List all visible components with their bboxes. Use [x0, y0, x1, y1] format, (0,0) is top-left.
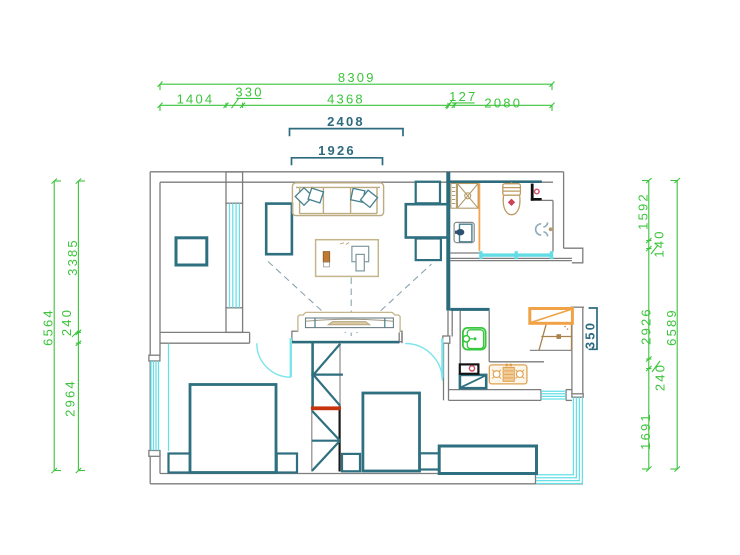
svg-text:240: 240	[59, 308, 74, 336]
svg-text:6564: 6564	[41, 308, 56, 346]
svg-text:2964: 2964	[63, 379, 78, 417]
svg-text:1404: 1404	[177, 92, 215, 107]
svg-text:350: 350	[583, 321, 598, 349]
svg-text:3385: 3385	[65, 238, 80, 276]
svg-text:1691: 1691	[638, 412, 653, 450]
svg-text:140: 140	[652, 229, 667, 257]
svg-text:330: 330	[235, 85, 263, 100]
svg-text:6589: 6589	[664, 308, 679, 346]
svg-text:1926: 1926	[318, 143, 356, 158]
svg-text:1592: 1592	[636, 192, 651, 230]
svg-text:2408: 2408	[327, 114, 365, 129]
svg-text:8309: 8309	[338, 70, 376, 85]
svg-text:240: 240	[653, 363, 668, 391]
svg-text:127: 127	[449, 89, 477, 104]
svg-text:2080: 2080	[484, 96, 522, 111]
svg-text:2926: 2926	[639, 307, 654, 345]
svg-text:4368: 4368	[327, 92, 365, 107]
